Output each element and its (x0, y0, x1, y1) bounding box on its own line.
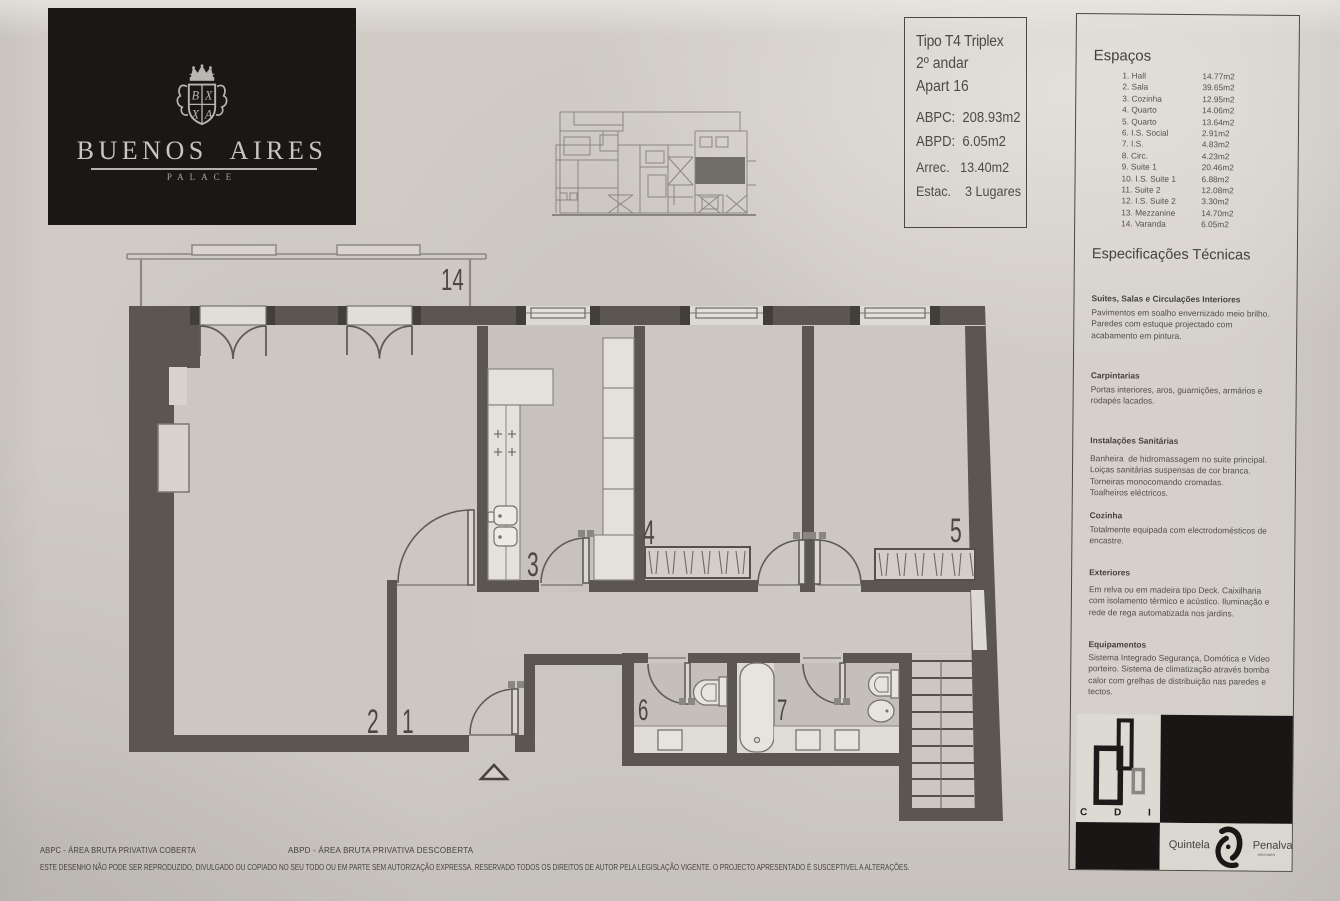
svg-text:3: 3 (527, 545, 539, 583)
svg-text:6: 6 (638, 694, 648, 728)
svg-text:I: I (1148, 808, 1151, 819)
svg-text:1: 1 (402, 702, 414, 740)
svg-text:D: D (1114, 807, 1121, 818)
svg-text:5: 5 (950, 511, 962, 549)
svg-text:2: 2 (367, 702, 379, 740)
svg-text:14: 14 (441, 262, 464, 297)
svg-text:C: C (1080, 807, 1087, 818)
svg-text:4: 4 (643, 513, 655, 551)
svg-text:7: 7 (777, 694, 787, 728)
